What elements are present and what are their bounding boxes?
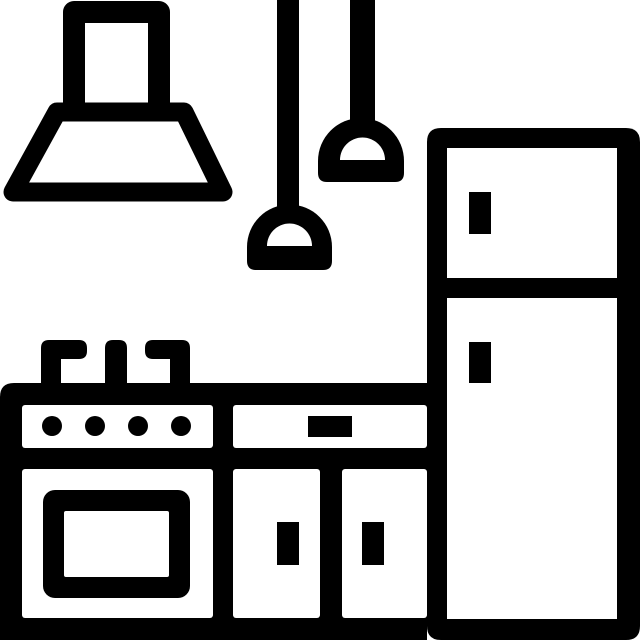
cabinet-door-left — [233, 469, 320, 618]
stove-knob — [42, 416, 62, 436]
stove-burner-grate-middle — [105, 340, 127, 385]
cabinet-door-left-handle — [277, 522, 299, 565]
kitchen-icon: Kitchen line icon — [0, 0, 640, 640]
counter-unit-icon — [0, 340, 427, 640]
range-hood-icon — [13, 12, 223, 192]
drawer-handle — [308, 416, 352, 437]
refrigerator-icon — [427, 128, 640, 640]
stove-burner-grate-right — [145, 340, 190, 385]
stove-burner-grate-left — [41, 340, 87, 385]
stove-knob — [171, 416, 191, 436]
stove-knob — [128, 416, 148, 436]
pendant-lamp-right-icon — [318, 0, 404, 182]
fridge-upper-handle — [469, 192, 491, 234]
cabinet-door-right-handle — [362, 522, 384, 565]
hood-chimney — [74, 12, 159, 118]
pendant-cord — [277, 0, 299, 212]
kitchen-illustration: Kitchen line icon — [0, 0, 640, 640]
pendant-cord — [350, 0, 375, 124]
hood-canopy — [13, 112, 223, 192]
fridge-lower-handle — [469, 342, 491, 383]
cabinet-door-right — [342, 469, 427, 618]
oven-door-window — [64, 511, 169, 577]
pendant-lamp-left-icon — [247, 0, 332, 270]
stove-knob — [85, 416, 105, 436]
